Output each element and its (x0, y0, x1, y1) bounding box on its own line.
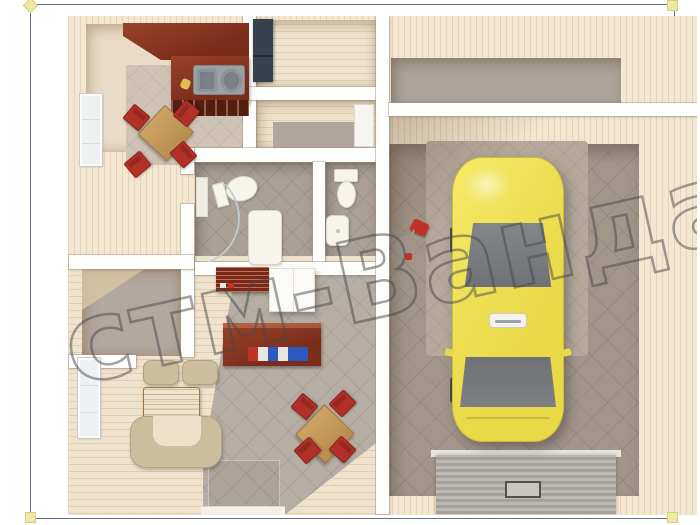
shoe-rack (216, 267, 269, 292)
door-mat (208, 460, 280, 510)
car-rear-window (462, 223, 554, 287)
rack-item (220, 283, 226, 288)
refrigerator-door-split (253, 55, 273, 57)
entry-threshold (201, 506, 285, 515)
floor-plan-image: стм-Ванда (0, 0, 700, 525)
car-hood-line (466, 417, 550, 419)
tool-handle (405, 229, 415, 254)
living-room-window (78, 358, 100, 438)
desk-edge-highlight (223, 323, 321, 328)
selection-handle-bottom-left[interactable] (25, 512, 36, 523)
selection-handle-top-right[interactable] (667, 0, 678, 11)
book (298, 347, 308, 361)
badge-line (495, 320, 521, 323)
book (268, 347, 278, 361)
sink-basin (197, 69, 217, 92)
tool-part (405, 253, 412, 260)
car-windshield (460, 357, 556, 407)
toilet-bowl-small (337, 181, 356, 208)
book (248, 347, 258, 361)
armchair (182, 360, 218, 385)
basin-drain-dot (336, 229, 340, 233)
selection-frame: стм-Ванда (30, 4, 675, 519)
bath-side-panel (196, 177, 208, 217)
wall-storage-top (69, 255, 194, 269)
car-top-view (452, 157, 564, 442)
refrigerator (253, 19, 273, 82)
kitchen-window (80, 94, 102, 166)
corridor-door-panel (354, 104, 374, 147)
wardrobe-door-line (293, 269, 294, 311)
utility-room-floor (256, 20, 376, 88)
book (258, 347, 268, 361)
wall-garage-annex (389, 103, 697, 116)
double-sink (193, 65, 245, 95)
armchair (143, 360, 179, 385)
red-tool-cart (403, 215, 433, 263)
wall-utility-corridor (243, 87, 376, 100)
book (278, 347, 288, 361)
water-heater (248, 210, 282, 265)
wall-above-bathrooms (181, 148, 376, 162)
sofa-inner-cut (153, 416, 201, 446)
book (288, 347, 298, 361)
house-plan: стм-Ванда (68, 16, 697, 515)
selection-handle-bottom-right[interactable] (667, 512, 678, 523)
wall-between-bathrooms (313, 162, 325, 263)
sink-basin (221, 69, 242, 92)
floor-drain (505, 481, 541, 498)
wardrobe-white (269, 268, 315, 312)
books-row (248, 347, 308, 361)
sofa-u-shape (130, 416, 222, 468)
car-highlight (462, 165, 512, 205)
car-roof-badge (489, 313, 527, 328)
wall-house-garage (376, 16, 389, 514)
garage-annex-floor (391, 58, 621, 103)
wash-basin (326, 215, 349, 246)
rack-item (228, 283, 234, 288)
